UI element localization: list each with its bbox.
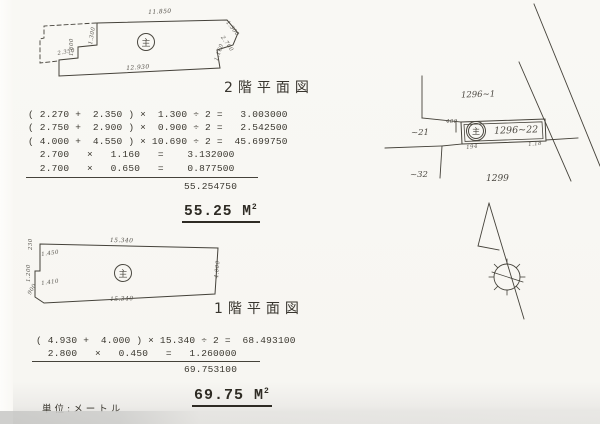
dim-label-1f-left: 1.200 — [26, 264, 32, 282]
dim-label-1f-left: 230 — [28, 238, 34, 250]
calc-line: ( 2.270 + 2.350 ) × 1.300 ÷ 2 = 3.003000 — [28, 108, 288, 121]
calc-line: 2.700 × 1.160 = 3.132000 — [28, 148, 288, 161]
building-symbol-circle-1f: 主 — [114, 264, 132, 282]
area-exponent-2f: 2 — [252, 203, 258, 212]
calc-line: ( 4.930 + 4.000 ) × 15.340 ÷ 2 = 68.4931… — [36, 334, 296, 347]
plan-title-1f: 1階平面図 — [214, 298, 304, 318]
site-tick-label-bottom-left: 194 — [466, 144, 478, 151]
building-symbol-2f: 主 — [141, 36, 150, 49]
area-calculation-2f: ( 2.270 + 2.350 ) × 1.300 ÷ 2 = 3.003000… — [28, 108, 288, 175]
dim-label-2f-left-step: 1.600 — [69, 38, 75, 56]
area-calculation-1f: ( 4.930 + 4.000 ) × 15.340 ÷ 2 = 68.4931… — [36, 334, 296, 361]
main-building-symbol: 主 — [472, 126, 480, 137]
site-tick-label-left: 400 — [446, 119, 458, 125]
site-road-lines — [519, 4, 600, 181]
area-value-1f: 69.75 M — [194, 387, 264, 404]
scan-bottom-shadow — [0, 411, 600, 424]
area-value-2f: 55.25 M — [184, 204, 252, 220]
scanned-document-page: 11.850 12.930 2.350 1.600 1.300 1.300 2.… — [0, 0, 600, 424]
north-arrow — [478, 203, 525, 319]
parcel-label-1296-1: 1296~1 — [461, 89, 496, 100]
calc-total-1f: 69.753100 — [184, 364, 237, 375]
calc-total-2f: 55.254750 — [184, 181, 237, 192]
area-exponent-1f: 2 — [264, 387, 270, 396]
building-parcel-label: 1296~22 — [494, 124, 539, 137]
area-result-1f: 69.75 M2 — [192, 387, 272, 407]
dim-label-1f-bottom: 15.340 — [110, 295, 134, 303]
plan-title-2f: 2階平面図 — [224, 77, 314, 97]
main-building-symbol-circle: 主 — [466, 121, 486, 141]
main-building-symbol-ring: 主 — [468, 123, 484, 139]
dim-label-1f-top: 15.340 — [110, 237, 134, 244]
calc-line: ( 4.000 + 4.550 ) × 10.690 ÷ 2 = 45.6997… — [28, 135, 288, 148]
calc-line: ( 2.750 + 2.900 ) × 0.900 ÷ 2 = 2.542500 — [28, 121, 288, 134]
area-result-2f: 55.25 M2 — [182, 203, 260, 223]
building-symbol-circle-2f: 主 — [137, 33, 155, 51]
parcel-label-21: ~21 — [411, 128, 429, 138]
building-symbol-1f: 主 — [118, 267, 127, 280]
calc-sum-rule-2f — [26, 177, 258, 178]
calc-line: 2.800 × 0.450 = 1.260000 — [36, 347, 296, 360]
parcel-label-32: ~32 — [410, 170, 428, 180]
calc-line: 2.700 × 0.650 = 0.877500 — [28, 162, 288, 175]
dim-label-2f-top: 11.850 — [148, 8, 172, 16]
calc-sum-rule-1f — [32, 361, 260, 362]
parcel-label-1299: 1299 — [486, 174, 509, 184]
